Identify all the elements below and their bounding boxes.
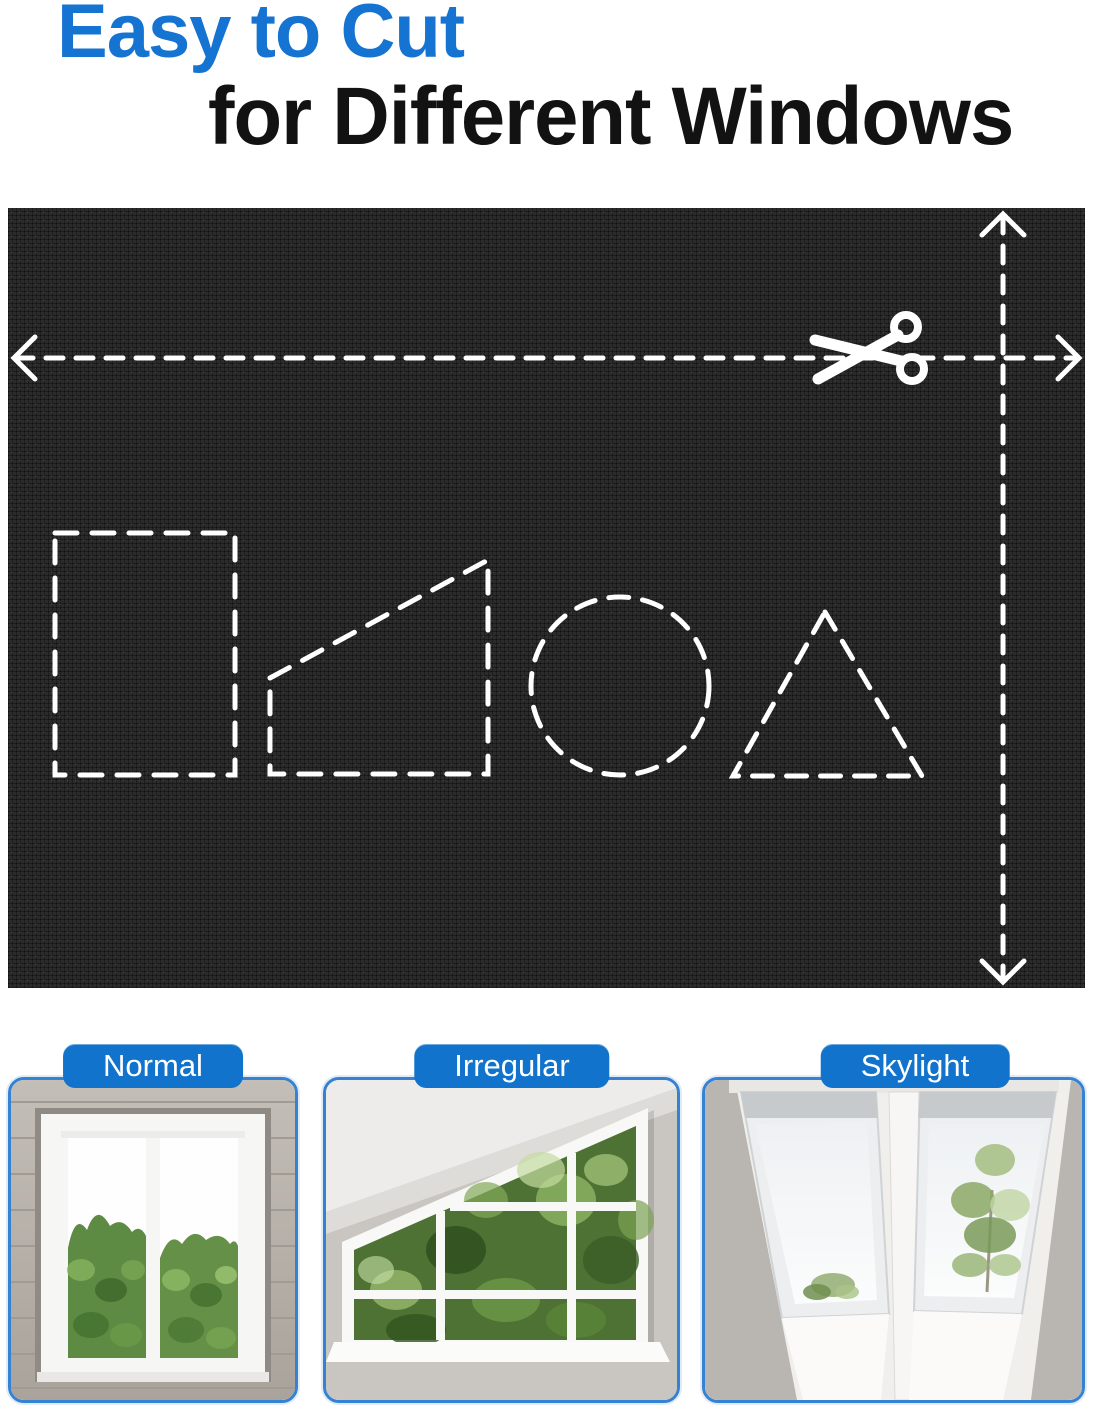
blackout-fabric-panel	[8, 208, 1085, 988]
cut-shape-circle	[531, 597, 709, 775]
window-sill	[326, 1342, 670, 1362]
cut-shape-rectangle	[55, 533, 235, 775]
window-type-label-irregular: Irregular	[414, 1044, 609, 1088]
irregular-window-card	[323, 1077, 680, 1403]
cut-shape-trapezoid	[270, 560, 488, 774]
scissors-icon	[815, 315, 924, 381]
window-type-label-skylight: Skylight	[821, 1044, 1010, 1088]
window-type-label-normal: Normal	[63, 1044, 243, 1088]
skylight-window-photo	[705, 1080, 1082, 1400]
cut-shape-triangle	[733, 612, 922, 776]
normal-window-photo	[11, 1080, 295, 1400]
skylight-window-card	[702, 1077, 1085, 1403]
page-title: Easy to Cut	[57, 0, 464, 70]
cut-guides-overlay	[8, 208, 1085, 988]
normal-window-card	[8, 1077, 298, 1403]
right-pane	[160, 1138, 238, 1358]
page-subtitle: for Different Windows	[208, 76, 1013, 158]
left-pane	[67, 1138, 146, 1358]
vertical-height-cut-arrow	[982, 214, 1024, 982]
irregular-window-photo	[326, 1080, 677, 1400]
